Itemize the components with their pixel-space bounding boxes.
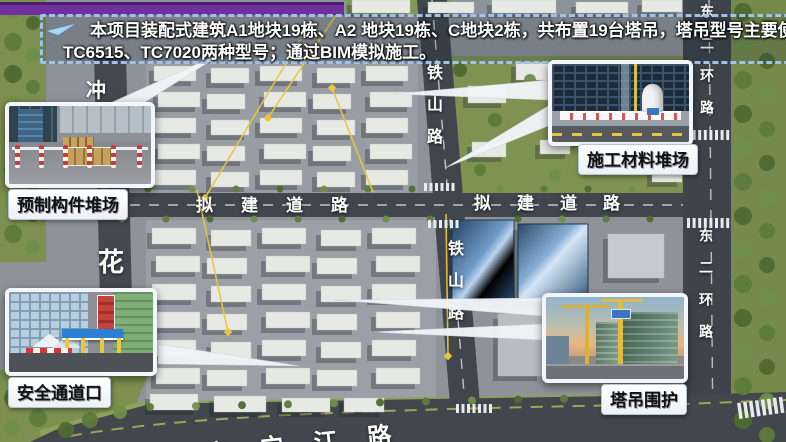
inset-precast-yard-photo [5, 102, 155, 188]
banner-text-line2: TC6515、TC7020两种型号；通过BIM模拟施工。 [63, 42, 436, 63]
label-crane-enclosure: 塔吊围护 [601, 384, 687, 415]
slide-canvas: 铁山路 铁山路 拟建道路 拟建道路 东二环路 东二环路 安宁江路 花 冲 本项目… [0, 0, 786, 442]
inset-crane-enclosure-photo [542, 293, 688, 383]
label-safety-passage: 安全通道口 [8, 377, 111, 408]
banner-text-line1: 本项目装配式建筑A1地块19栋、A2 地块19栋、C地块2栋，共布置19台塔吊，… [90, 20, 786, 41]
label-precast-yard: 预制构件堆场 [8, 189, 128, 220]
inset-material-yard-photo [548, 60, 693, 146]
label-material-yard: 施工材料堆场 [578, 144, 698, 175]
title-banner: 本项目装配式建筑A1地块19栋、A2 地块19栋、C地块2栋，共布置19台塔吊，… [40, 14, 786, 64]
inset-safety-passage-photo [5, 288, 157, 376]
